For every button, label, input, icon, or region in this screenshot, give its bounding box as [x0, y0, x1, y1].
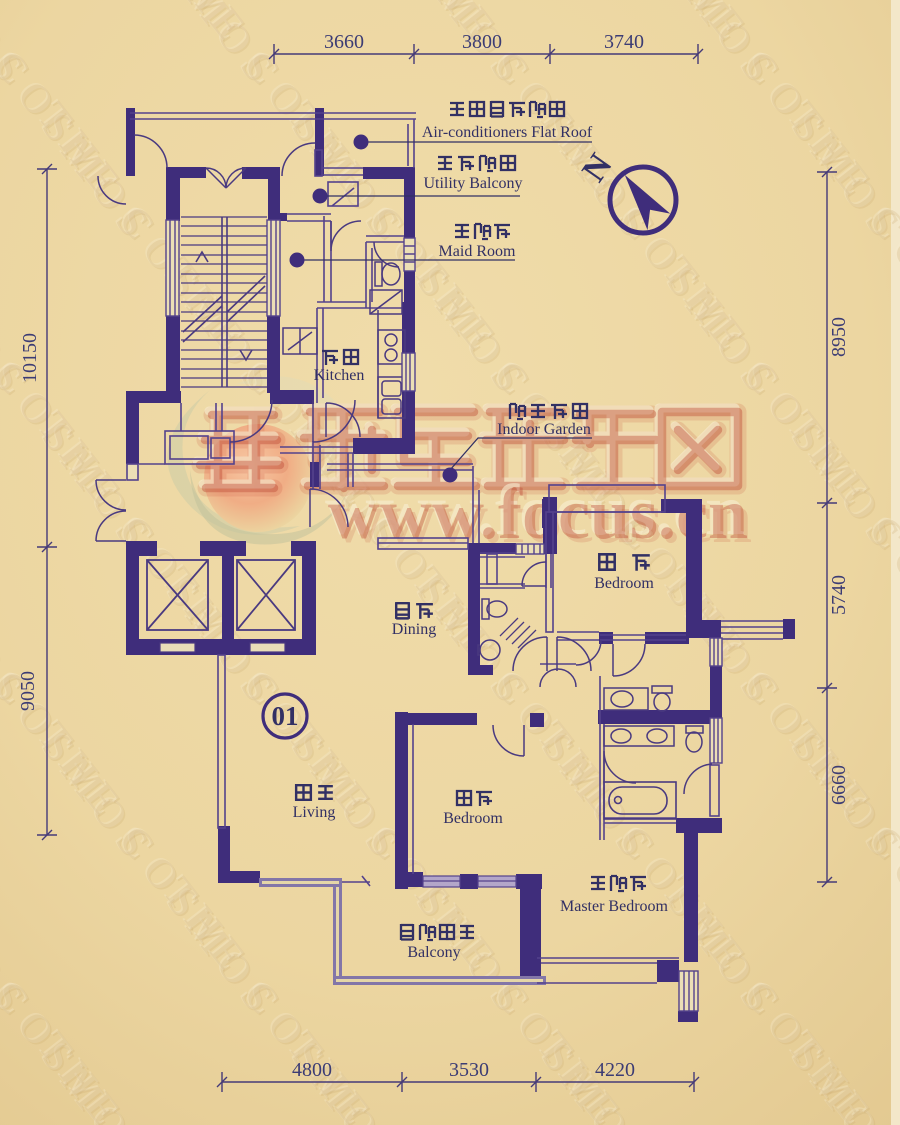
svg-text:3800: 3800 — [462, 31, 502, 53]
svg-text:3740: 3740 — [604, 31, 644, 53]
svg-text:3660: 3660 — [324, 31, 364, 53]
svg-text:Balcony: Balcony — [407, 944, 460, 961]
svg-text:Utility Balcony: Utility Balcony — [423, 175, 522, 192]
svg-text:Kitchen: Kitchen — [314, 367, 365, 384]
svg-text:8950: 8950 — [828, 317, 850, 357]
svg-text:01: 01 — [272, 701, 299, 731]
svg-text:www.focus.cn: www.focus.cn — [328, 474, 748, 554]
svg-text:5740: 5740 — [828, 575, 850, 615]
svg-text:6660: 6660 — [828, 765, 850, 805]
svg-text:Living: Living — [293, 804, 336, 821]
svg-text:3530: 3530 — [449, 1059, 489, 1081]
svg-text:Bedroom: Bedroom — [594, 575, 654, 592]
svg-text:Dining: Dining — [392, 621, 436, 638]
svg-text:Master Bedroom: Master Bedroom — [560, 898, 669, 915]
svg-text:Bedroom: Bedroom — [443, 810, 503, 827]
svg-text:4800: 4800 — [292, 1059, 332, 1081]
svg-text:4220: 4220 — [595, 1059, 635, 1081]
svg-text:Maid Room: Maid Room — [439, 243, 516, 260]
svg-text:10150: 10150 — [19, 333, 41, 383]
svg-text:Indoor Garden: Indoor Garden — [497, 421, 591, 438]
svg-text:Air-conditioners Flat Roof: Air-conditioners Flat Roof — [422, 124, 593, 141]
svg-text:9050: 9050 — [17, 671, 39, 711]
